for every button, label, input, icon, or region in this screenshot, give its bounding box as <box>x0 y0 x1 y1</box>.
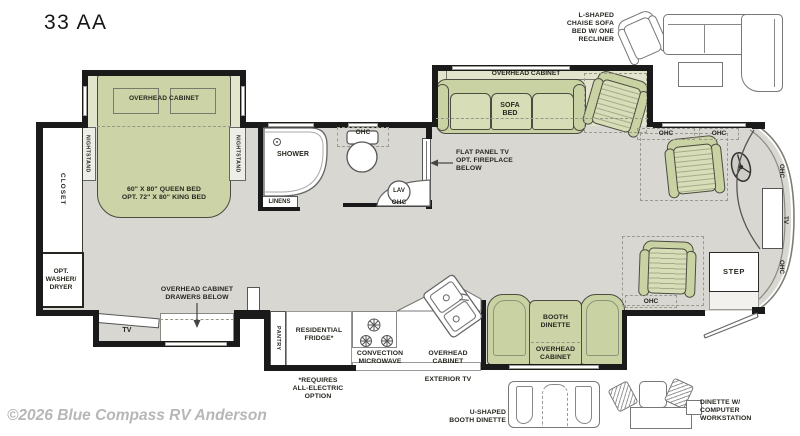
wall-dinette-right <box>622 310 627 370</box>
fridge-label: RESIDENTIAL FRIDGE* <box>286 327 352 343</box>
l-shaped-option-label: L-SHAPED CHAISE SOFA BED W/ ONE RECLINER <box>538 12 614 44</box>
wall-bottom-door <box>627 310 705 316</box>
wall-kitchen-left <box>264 310 270 371</box>
wall-dinette-left <box>481 300 486 370</box>
pantry-label: PANTRY <box>271 312 285 365</box>
washer-dryer: OPT. WASHER/ DRYER <box>38 252 84 308</box>
window <box>268 123 314 127</box>
watermark: ©2026 Blue Compass RV Anderson <box>7 407 267 425</box>
step-label: STEP <box>710 253 758 291</box>
wall-top-rear <box>36 122 88 128</box>
wall-post-front-top <box>752 122 765 129</box>
window <box>348 123 378 127</box>
dinette-seam <box>531 342 580 343</box>
cooktop-microwave <box>352 311 397 348</box>
window <box>509 365 599 369</box>
nightstand-right-label: NIGHTSTAND <box>230 128 245 180</box>
bed-slide-seam <box>97 126 231 127</box>
window <box>83 86 87 116</box>
closet-label: CLOSET <box>43 127 82 252</box>
window <box>452 66 570 70</box>
wall-tvslide-right <box>234 310 240 347</box>
toilet-ohc-label: OHC <box>341 129 385 137</box>
wall-bath-left <box>258 125 263 209</box>
window <box>241 86 245 116</box>
wall-bottom-mid <box>240 310 268 319</box>
sofa-bed-label: SOFA BED <box>486 102 534 119</box>
ohc-1-label: OHC <box>638 129 694 139</box>
wall-rear <box>36 122 43 316</box>
exterior-tv-label: EXTERIOR TV <box>415 376 481 384</box>
front-ohc-bottom-label: OHC <box>772 248 785 286</box>
window <box>165 342 227 346</box>
option-ws-chair-center <box>639 381 667 408</box>
bedroom-dresser <box>160 313 234 344</box>
dresser-note: OVERHEAD CABINET DRAWERS BELOW <box>137 286 257 302</box>
rv-floorplan: 60" X 80" QUEEN BED OPT. 72" X 80" KING … <box>0 0 800 436</box>
ohc-2-label: OHC <box>700 129 738 139</box>
dinette-bench-left <box>487 294 532 365</box>
all-electric-note: *REQUIRES ALL-ELECTRIC OPTION <box>282 377 354 401</box>
wall-bath-bottom-left <box>258 207 300 211</box>
bed-label: 60" X 80" QUEEN BED OPT. 72" X 80" KING … <box>100 186 228 202</box>
option-ubooth <box>508 381 600 428</box>
front-ohc-top-label: OHC <box>772 152 785 190</box>
wall-post-front-bottom <box>752 307 765 314</box>
recliner-zone <box>584 73 647 133</box>
floorplan-title: 33 AA <box>44 11 108 35</box>
wall-bath-right-bottom <box>426 200 432 209</box>
kitchen-ohc-label: OVERHEAD CABINET <box>418 350 478 366</box>
front-tv-label: TV <box>776 207 789 233</box>
option-ws-table <box>630 407 692 429</box>
flat-panel-tv <box>422 138 431 203</box>
nightstand-right: NIGHTSTAND <box>229 127 246 181</box>
shower-label: SHOWER <box>268 151 318 159</box>
overhead-cabinet-bedroom-label: OVERHEAD CABINET <box>110 95 218 103</box>
ohc-zone-entry: OHC <box>625 295 677 308</box>
dinette-ohc-label: OVERHEAD CABINET <box>527 346 584 362</box>
ohc-entry-label: OHC <box>626 296 676 307</box>
u-shaped-option-label: U-SHAPED BOOTH DINETTE <box>444 409 506 425</box>
pantry: PANTRY <box>270 311 286 366</box>
wall-bedslide-top <box>82 70 246 76</box>
wall-bottom-rear <box>36 310 96 316</box>
microwave-label: CONVECTION MICROWAVE <box>348 350 412 366</box>
ohc-zone-2: OHC <box>699 128 739 140</box>
flat-panel-tv-note: FLAT PANEL TV OPT. FIREPLACE BELOW <box>456 149 536 173</box>
booth-dinette-label: BOOTH DINETTE <box>527 314 584 330</box>
window <box>662 123 746 127</box>
wall-bath-right-top <box>426 125 432 139</box>
dresser-dash <box>160 319 234 320</box>
dinette-bench-right <box>580 294 625 365</box>
workstation-option-label: DINETTE W/ COMPUTER WORKSTATION <box>700 399 766 423</box>
option-lsofa-table <box>678 62 723 87</box>
option-lsofa-chaise <box>741 14 783 92</box>
lav-ohc-label: OHC <box>387 199 411 207</box>
driver-seat-zone <box>640 133 728 201</box>
lav-label: LAV <box>388 188 410 195</box>
bedroom-tv-label: TV <box>112 327 142 335</box>
wall-kitchen-bottom <box>264 365 356 371</box>
step-box: STEP <box>709 252 759 292</box>
closet: CLOSET <box>42 126 83 253</box>
option-recliner <box>613 7 670 66</box>
washer-dryer-label: OPT. WASHER/ DRYER <box>40 254 82 306</box>
ohc-zone-1: OHC <box>637 128 695 140</box>
